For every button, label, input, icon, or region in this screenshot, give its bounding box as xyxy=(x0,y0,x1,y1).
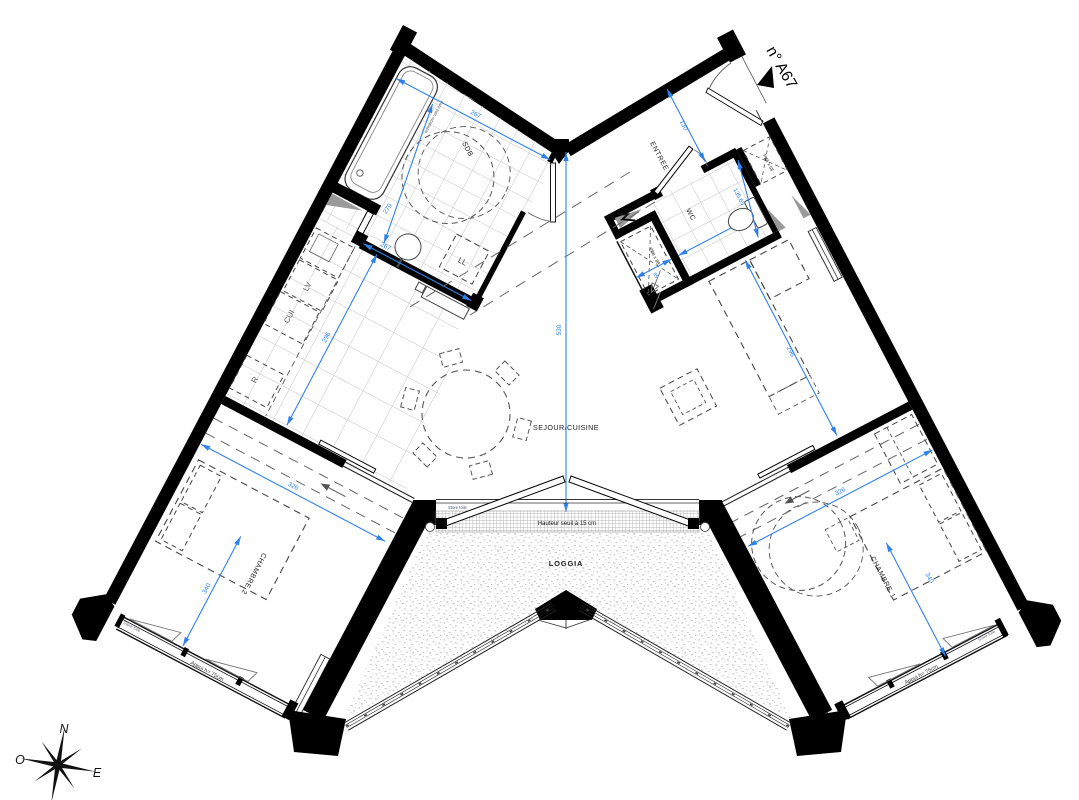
svg-text:46 x 58: 46 x 58 xyxy=(763,156,775,172)
svg-text:E: E xyxy=(93,766,102,780)
svg-text:O: O xyxy=(15,753,25,767)
svg-text:530: 530 xyxy=(556,324,563,335)
svg-text:CHAMBRE 2: CHAMBRE 2 xyxy=(239,551,267,595)
svg-text:LOGGIA: LOGGIA xyxy=(549,559,583,568)
svg-text:296: 296 xyxy=(785,345,796,358)
svg-text:130: 130 xyxy=(678,119,689,132)
svg-text:340: 340 xyxy=(923,572,934,585)
svg-text:ENTREE: ENTREE xyxy=(648,141,669,173)
svg-text:N: N xyxy=(59,722,69,736)
svg-text:CHAMBRE 1: CHAMBRE 1 xyxy=(869,556,897,600)
svg-text:Hauteur seuil à 15 cm: Hauteur seuil à 15 cm xyxy=(538,521,596,527)
svg-text:Store toile: Store toile xyxy=(448,505,468,510)
svg-text:88 x 88: 88 x 88 xyxy=(650,250,662,266)
